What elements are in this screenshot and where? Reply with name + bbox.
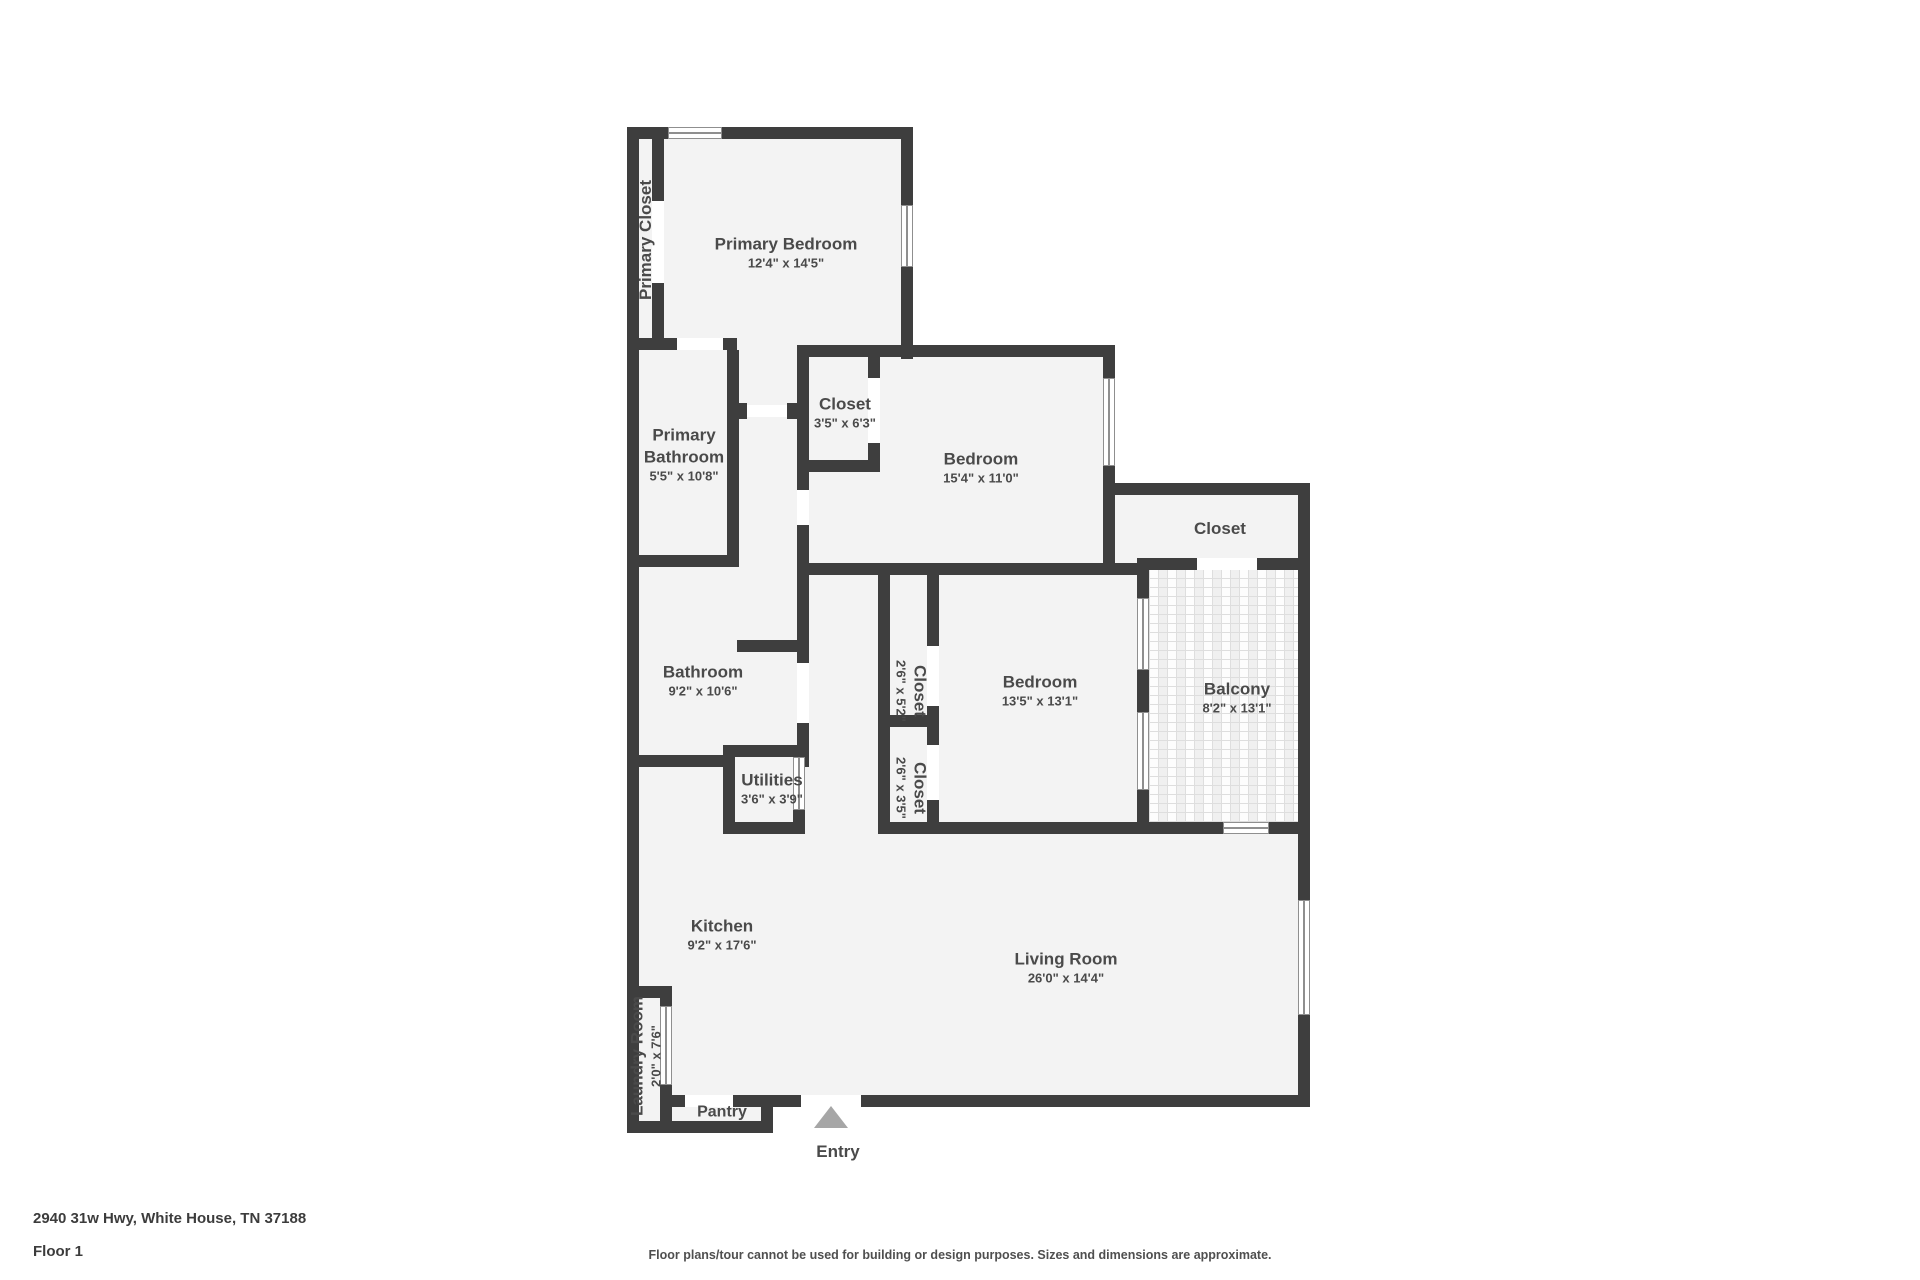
window <box>1223 822 1269 834</box>
wall <box>627 755 723 767</box>
room-name: Primary Closet <box>635 180 657 300</box>
wall <box>1269 822 1310 834</box>
room-name: Utilities <box>741 770 803 792</box>
room-name: Living Room <box>1015 949 1118 971</box>
room-name: Closet <box>1194 518 1246 540</box>
room-name: Primary Bedroom <box>715 234 858 256</box>
door-jamb <box>737 403 747 419</box>
room-label-primary-bedroom: Primary Bedroom 12'4" x 14'5" <box>715 234 858 273</box>
room-label-bathroom: Bathroom 9'2" x 10'6" <box>663 662 743 701</box>
room-name: Closet <box>908 660 930 722</box>
wall <box>1103 483 1310 495</box>
window <box>901 205 913 267</box>
room-name: Primary Bathroom <box>625 424 743 468</box>
room-label-closet-b: Closet <box>1194 518 1246 540</box>
room-name: Bathroom <box>663 662 743 684</box>
room-dims: 5'5" x 10'8" <box>625 469 743 486</box>
room-label-closet-d: Closet 2'6" x 3'5" <box>892 757 931 819</box>
room-name: Pantry <box>697 1103 747 1124</box>
room-dims: 15'4" x 11'0" <box>943 471 1019 488</box>
door-opening <box>747 405 787 417</box>
room-label-balcony: Balcony 8'2" x 13'1" <box>1202 679 1271 718</box>
window <box>668 127 722 139</box>
wall <box>723 338 737 350</box>
wall <box>627 555 737 567</box>
room-dims: 2'6" x 3'5" <box>892 757 909 819</box>
window <box>1103 378 1115 466</box>
room-name: Laundry Room <box>627 996 649 1116</box>
door-opening <box>1197 558 1257 570</box>
room-label-laundry-room: Laundry Room 2'0" x 7'6" <box>627 996 666 1116</box>
room-dims: 13'5" x 13'1" <box>1002 694 1078 711</box>
wall <box>797 345 1115 357</box>
room-label-bedroom-b: Bedroom 13'5" x 13'1" <box>1002 672 1078 711</box>
room-dims: 2'0" x 7'6" <box>649 996 666 1116</box>
window <box>1137 712 1149 790</box>
room-name: Kitchen <box>687 916 756 938</box>
wall <box>927 575 939 646</box>
room-dims: 3'5" x 6'3" <box>814 416 876 433</box>
wall <box>868 357 880 378</box>
room-name: Closet <box>908 757 930 819</box>
room-name: Entry <box>816 1141 859 1163</box>
wall <box>861 1095 1310 1107</box>
address-text: 2940 31w Hwy, White House, TN 37188 <box>33 1210 306 1227</box>
room-name: Bedroom <box>1002 672 1078 694</box>
room-name: Balcony <box>1202 679 1271 701</box>
room-label-kitchen: Kitchen 9'2" x 17'6" <box>687 916 756 955</box>
wall <box>927 727 939 745</box>
wall <box>797 460 880 472</box>
floor-plan: Primary Closet Primary Bedroom 12'4" x 1… <box>0 0 1920 1280</box>
wall <box>797 563 1149 575</box>
wall <box>878 822 1223 834</box>
room-label-pantry: Pantry <box>697 1103 747 1124</box>
wall <box>793 810 805 822</box>
room-dims: 26'0" x 14'4" <box>1015 971 1118 988</box>
room-dims: 3'6" x 3'9" <box>741 792 803 809</box>
room-dims: 2'6" x 5'2" <box>892 660 909 722</box>
disclaimer-text: Floor plans/tour cannot be used for buil… <box>648 1248 1271 1262</box>
wall <box>793 745 805 757</box>
room-label-utilities: Utilities 3'6" x 3'9" <box>741 770 803 809</box>
wall <box>672 1095 685 1107</box>
floor-number-text: Floor 1 <box>33 1243 83 1260</box>
room-dims: 9'2" x 17'6" <box>687 938 756 955</box>
wall <box>627 338 677 350</box>
window <box>1298 900 1310 1015</box>
room-label-bedroom-a: Bedroom 15'4" x 11'0" <box>943 449 1019 488</box>
window <box>1137 598 1149 670</box>
room-label-living-room: Living Room 26'0" x 14'4" <box>1015 949 1118 988</box>
door-jamb <box>787 403 797 419</box>
room-label-closet-c: Closet 2'6" x 5'2" <box>892 660 931 722</box>
door-opening <box>797 663 809 723</box>
entry-label: Entry <box>816 1141 859 1163</box>
room-label-primary-bathroom: Primary Bathroom 5'5" x 10'8" <box>625 424 743 485</box>
door-opening <box>677 338 723 350</box>
room-name: Closet <box>814 394 876 416</box>
room-dims: 8'2" x 13'1" <box>1202 701 1271 718</box>
wall <box>1257 558 1310 570</box>
wall <box>737 640 809 652</box>
room-label-closet-a: Closet 3'5" x 6'3" <box>814 394 876 433</box>
entry-arrow-icon <box>814 1106 848 1128</box>
wall <box>723 822 805 834</box>
door-opening <box>797 490 809 525</box>
wall <box>878 575 890 834</box>
room-dims: 12'4" x 14'5" <box>715 256 858 273</box>
room-dims: 9'2" x 10'6" <box>663 684 743 701</box>
room-name: Bedroom <box>943 449 1019 471</box>
room-label-primary-closet: Primary Closet <box>635 180 657 300</box>
